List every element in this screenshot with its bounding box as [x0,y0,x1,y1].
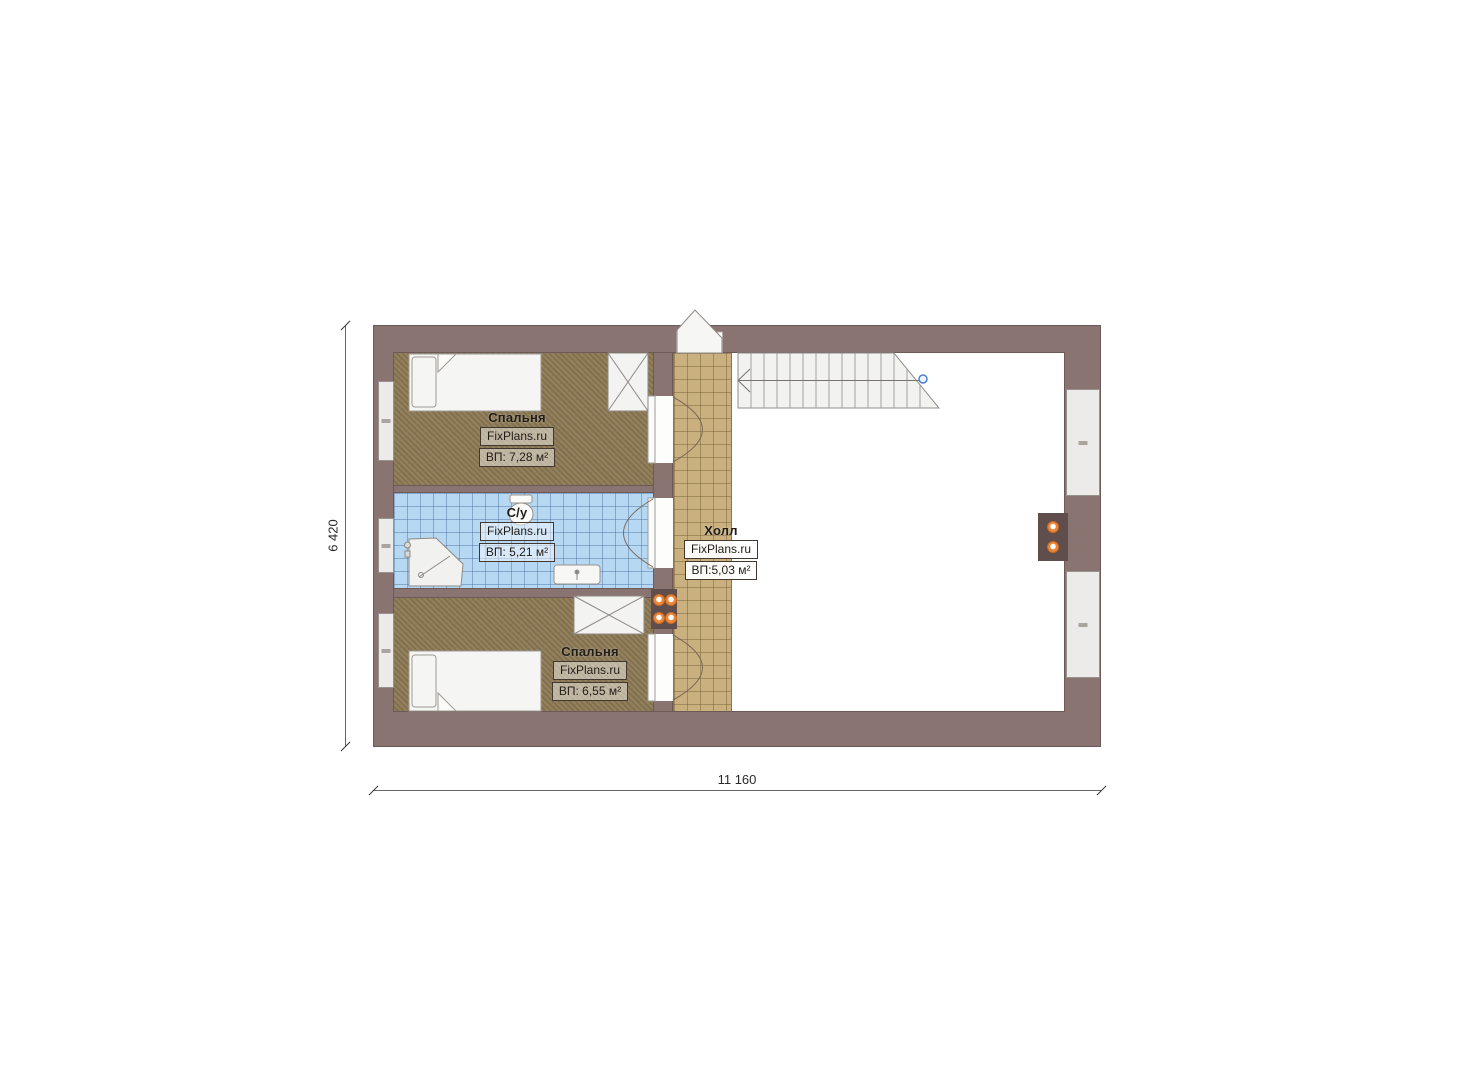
pillow [412,655,436,707]
floor-plan: Спальня FixPlans.ru ВП: 7,28 м² С/у FixP… [373,325,1101,747]
door-swing-arc [673,397,703,462]
room-label-bathroom: С/у FixPlans.ru ВП: 5,21 м² [434,505,600,562]
area-box: ВП: 5,21 м² [479,543,555,562]
area-box: ВП: 6,55 м² [552,682,628,701]
shower-valve-icon [405,551,410,557]
staircase [738,353,939,408]
dimension-label-height: 6 420 [326,506,341,566]
room-label-bedroom-bottom: Спальня FixPlans.ru ВП: 6,55 м² [507,644,673,701]
watermark-box: FixPlans.ru [553,661,627,680]
dimension-line-vertical [345,325,346,747]
sink [554,565,600,584]
door-swing-arc [673,635,703,700]
room-name: Холл [704,523,737,538]
bed [409,354,541,411]
door-leaf [648,396,655,463]
dimension-line-horizontal [373,790,1101,791]
stairs-section-marker-icon [919,375,927,383]
watermark-box: FixPlans.ru [684,540,758,559]
watermark-box: FixPlans.ru [480,522,554,541]
wardrobe [608,353,648,411]
wardrobe [574,596,644,634]
area-box: ВП:5,03 м² [685,561,758,580]
pillow [412,357,436,407]
room-name: С/у [507,505,528,520]
shower-faucet-icon [405,542,411,548]
room-name: Спальня [561,644,619,659]
dimension-label-width: 11 160 [637,772,837,787]
hall-top-door [677,310,723,353]
sink-faucet-icon [575,570,579,574]
room-label-bedroom-top: Спальня FixPlans.ru ВП: 7,28 м² [434,410,600,467]
floor-plan-page: Спальня FixPlans.ru ВП: 7,28 м² С/у FixP… [0,0,1474,1080]
watermark-box: FixPlans.ru [480,427,554,446]
area-box: ВП: 7,28 м² [479,448,555,467]
room-label-hall: Холл FixPlans.ru ВП:5,03 м² [638,523,804,580]
room-name: Спальня [488,410,546,425]
